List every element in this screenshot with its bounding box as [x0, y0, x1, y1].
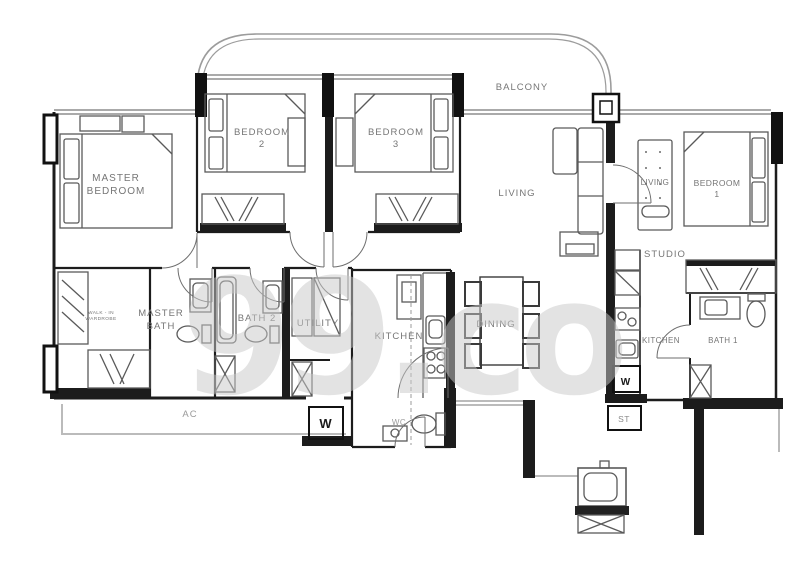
- label-bedroom-3: BEDROOM3: [368, 127, 424, 150]
- window-walkin: [44, 346, 57, 392]
- desk-bedroom2: [288, 118, 305, 166]
- side-table-master-1: [80, 116, 120, 131]
- shower-bath1: [690, 365, 711, 398]
- sofa-living-main: [553, 128, 603, 234]
- wardrobe-bedroom3: [376, 194, 458, 224]
- desk-bedroom3: [336, 118, 353, 166]
- label-living-studio: LIVING: [641, 178, 670, 187]
- balcony-parapet: [197, 34, 611, 112]
- label-storage-st: ST: [618, 414, 630, 424]
- bath1-fixtures: [690, 294, 765, 398]
- label-walkin-wardrobe: WALK - INWARDROBE: [85, 310, 116, 322]
- wardrobe-bedroom2: [202, 194, 284, 224]
- floor-plan-page: BALCONYMASTERBEDROOMBEDROOM2BEDROOM3LIVI…: [0, 0, 800, 575]
- side-table-master-2: [122, 116, 144, 132]
- label-living-main: LIVING: [498, 188, 535, 199]
- toilet-tank-bath1: [748, 294, 765, 301]
- floor-plan-drawing: BALCONYMASTERBEDROOMBEDROOM2BEDROOM3LIVI…: [0, 0, 800, 575]
- window-master-bedroom: [44, 115, 57, 163]
- label-bath-1: BATH 1: [708, 336, 738, 345]
- label-washer-studio: W: [621, 377, 631, 388]
- column-bedroom3-right: [452, 73, 464, 117]
- label-bedroom-1: BEDROOM1: [694, 178, 741, 199]
- balcony-access-box: [593, 94, 619, 122]
- label-master-bath: MASTERBATH: [138, 308, 184, 332]
- walkin-wardrobe-rails: [58, 272, 150, 388]
- toilet-bowl-bath1: [747, 301, 765, 327]
- window-bedroom1: [771, 112, 783, 164]
- label-studio: STUDIO: [644, 249, 686, 260]
- column-bedroom23-mid: [322, 73, 334, 117]
- external-wash-basin: [575, 461, 629, 533]
- label-kitchen-studio: KITCHEN: [642, 336, 680, 345]
- label-master-bedroom: MASTERBEDROOM: [87, 173, 146, 197]
- label-bedroom-2: BEDROOM2: [234, 127, 290, 150]
- watermark: 99.co: [181, 244, 623, 431]
- label-balcony: BALCONY: [496, 82, 548, 93]
